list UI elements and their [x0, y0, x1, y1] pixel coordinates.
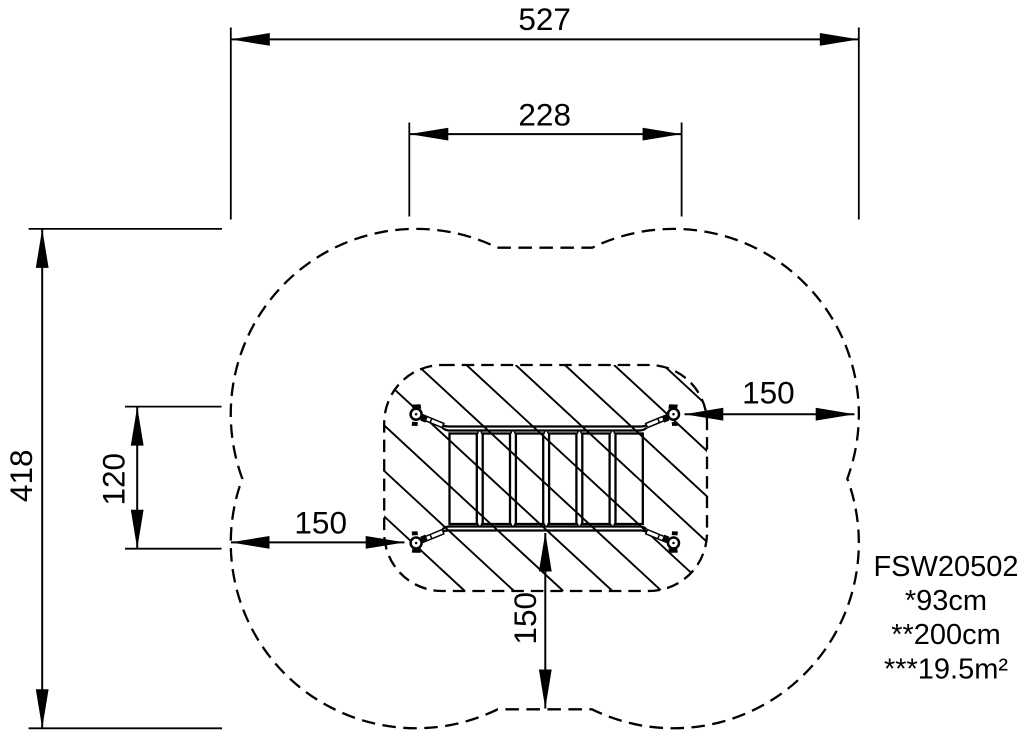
svg-text:***19.5m²: ***19.5m² [884, 653, 1008, 685]
svg-text:**200cm: **200cm [891, 619, 1001, 651]
svg-text:527: 527 [518, 1, 571, 37]
svg-text:150: 150 [294, 505, 347, 541]
svg-text:120: 120 [96, 453, 132, 506]
svg-text:150: 150 [742, 375, 795, 411]
svg-text:*93cm: *93cm [905, 585, 987, 617]
svg-text:418: 418 [3, 450, 39, 503]
svg-text:FSW20502: FSW20502 [873, 551, 1018, 583]
svg-text:150: 150 [507, 592, 543, 645]
svg-text:228: 228 [518, 97, 571, 133]
